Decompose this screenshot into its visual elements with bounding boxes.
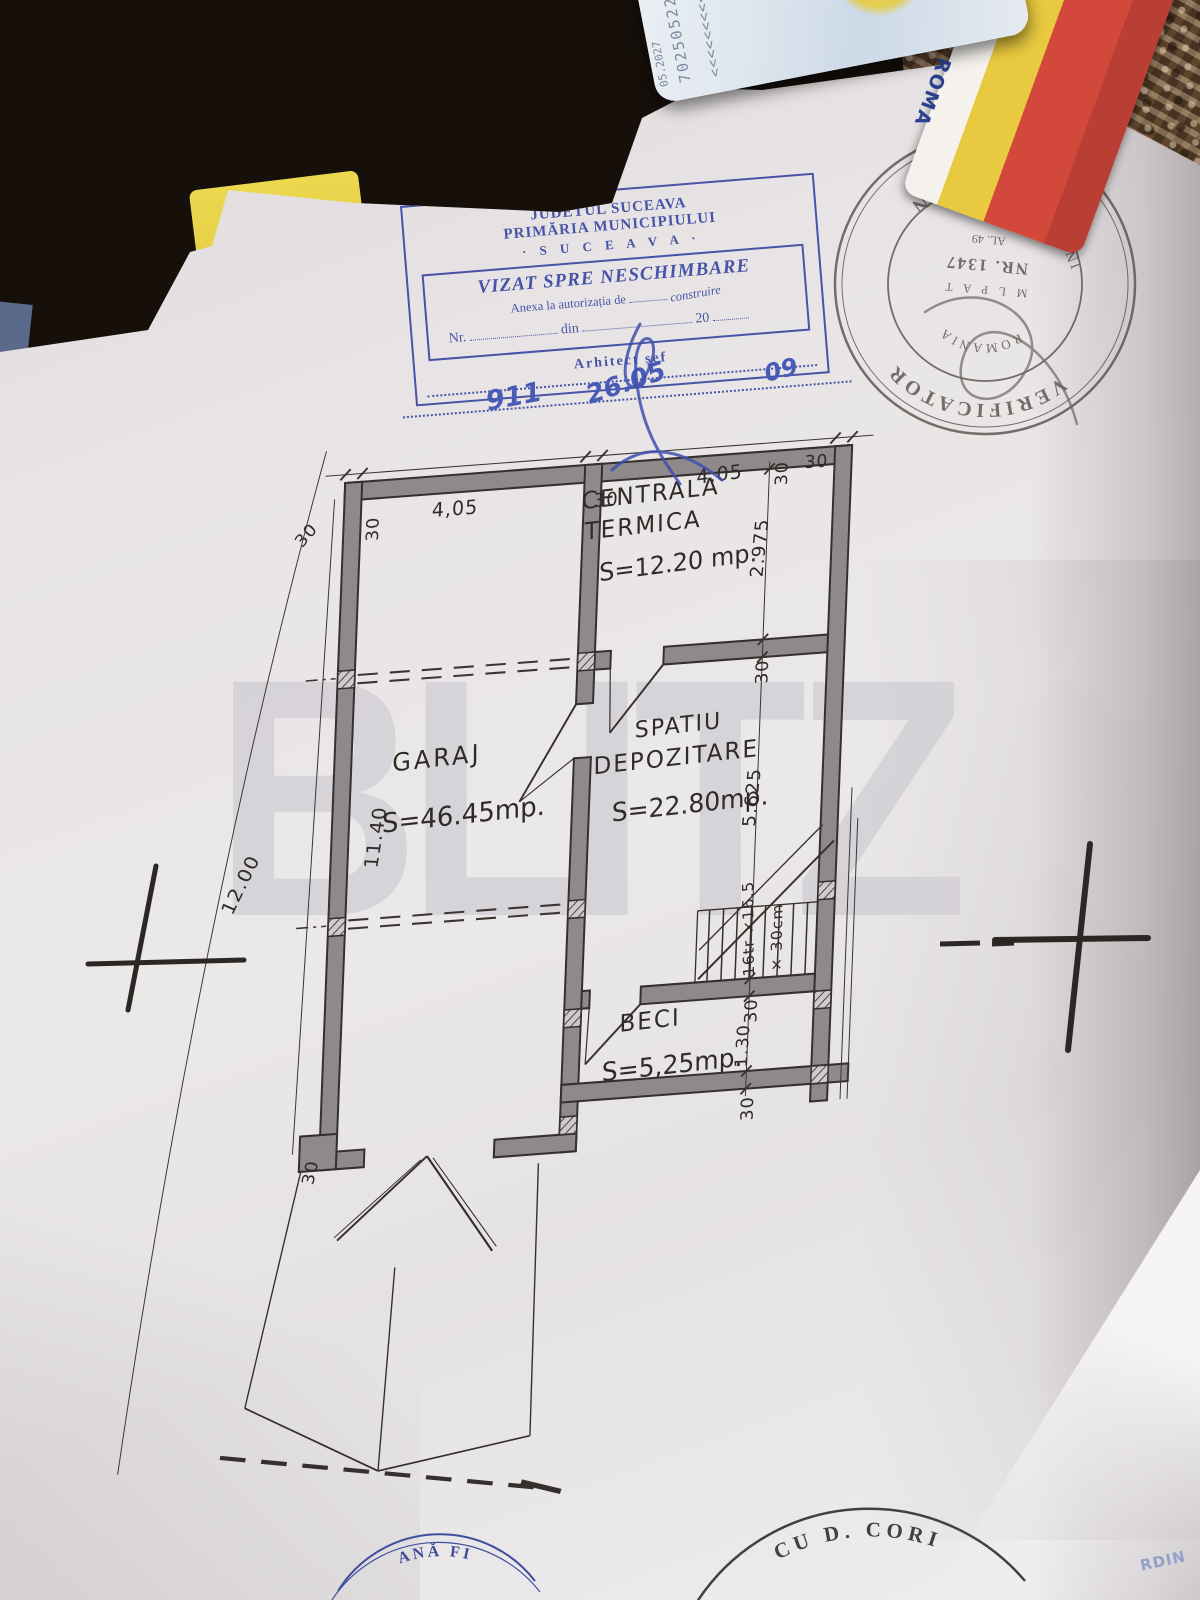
dim-span-garaj: 4,05 [431,496,478,522]
bottom-stamps: ANĂ FI CU D. CORI [260,1495,1180,1600]
nr-dotted-blank [469,323,558,341]
dim-wall-right-a: 30 [752,659,773,685]
dim-height-beci: 1.30 [732,1024,755,1068]
bottom-stamp-left-text: ANĂ FI [396,1541,474,1567]
annex-value: construire [669,282,722,305]
bottom-stamp-center-text: CU D. CORI [770,1517,945,1564]
stamp-inner-number: NR. 1347 [944,252,1028,278]
garage-door-and-ramp [218,1145,574,1517]
dim-wall-top-left: 30 [363,516,384,542]
annex-dotted-blank [628,289,667,303]
card-map-graphic [794,0,961,22]
dim-wall-top-right-b: 30 [804,451,828,474]
axis-cross-left [80,850,260,1030]
paper-sheet: BLITZ [0,0,1200,1600]
stamp-inner-al: AL. 49 [971,232,1006,249]
annex-prefix: Anexa la autorizația de [510,292,626,315]
din-label: din [560,321,579,337]
card-date-fragment: 05.2027 [650,40,672,88]
card-mrz-line: <<<<<<<<<<<< [687,0,724,78]
stair-note-line2: × 30cm [767,902,786,971]
stair-note-line1: 16tr ×16.5 [739,880,758,977]
blue-signature-scribble [592,318,742,493]
photographed-document: BLITZ [0,0,1200,1600]
dim-wall-right-b: 30 [741,998,762,1024]
staircase [695,824,835,983]
axis-cross-right [940,828,1200,1068]
dim-wall-top-right-a: 30 [772,460,793,486]
gray-signature-scribble [905,282,1105,452]
nr-label: Nr. [448,330,467,346]
dim-wall-right-c: 30 [737,1095,758,1121]
